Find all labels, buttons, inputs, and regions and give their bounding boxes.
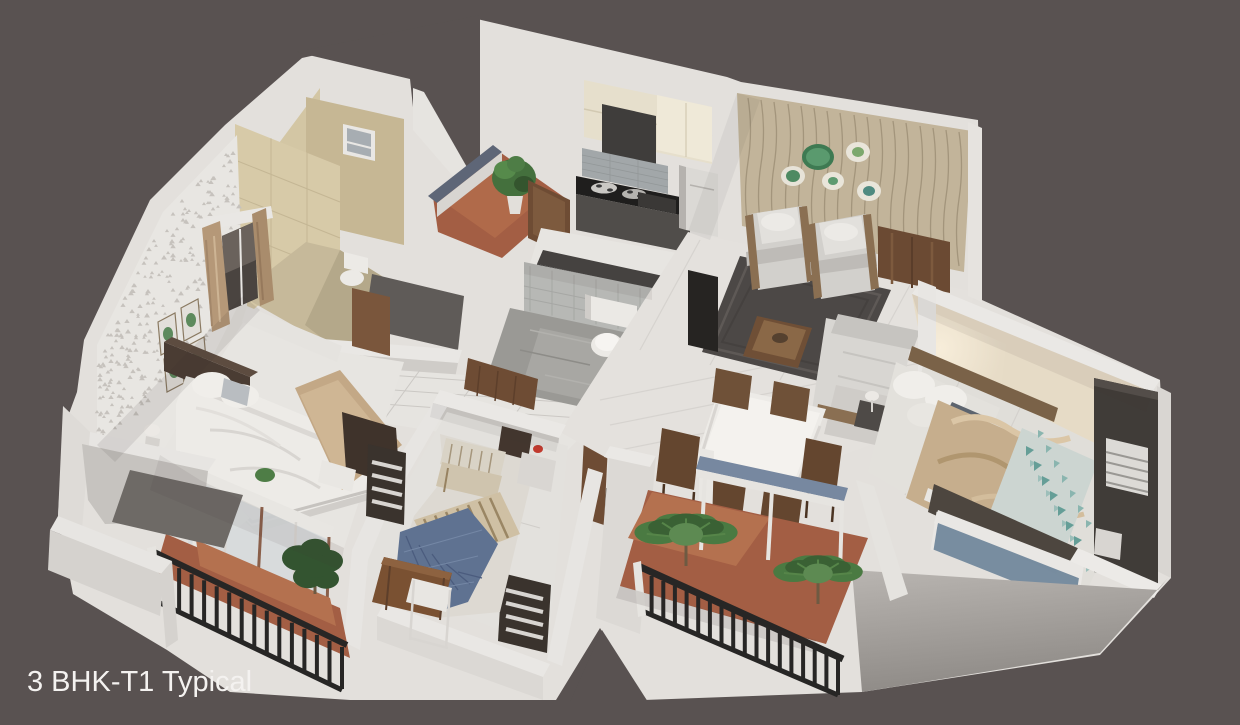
svg-text:3 BHK-T1 Typical: 3 BHK-T1 Typical (27, 666, 252, 698)
